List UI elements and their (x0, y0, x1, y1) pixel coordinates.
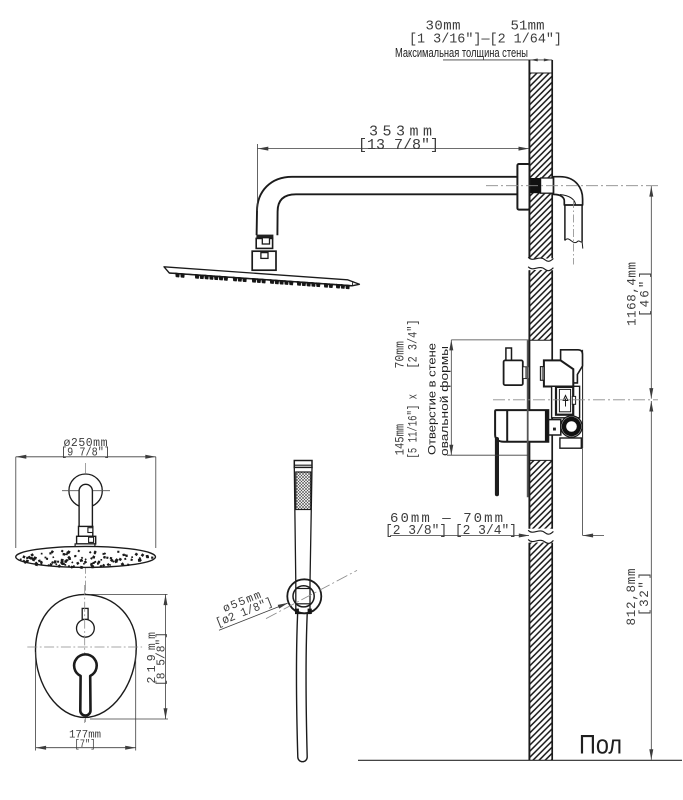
svg-text:овальной формы: овальной формы (439, 346, 451, 456)
svg-text:Максимальная толщина стены: Максимальная толщина стены (395, 45, 528, 60)
svg-text:812,8mm: 812,8mm (625, 569, 639, 626)
svg-text:145mm: 145mm (394, 424, 408, 456)
svg-text:Отверстие в стене: Отверстие в стене (427, 343, 439, 455)
svg-text:[9 7/8"]: [9 7/8"] (61, 447, 110, 460)
svg-text:70mm: 70mm (394, 341, 408, 369)
svg-text:[2 3/4"]: [2 3/4"] (407, 320, 421, 369)
svg-text:[32"]: [32"] (638, 572, 652, 616)
svg-text:[5 11/16"] x: [5 11/16"] x (407, 394, 421, 459)
svg-text:[8 5/8"]: [8 5/8"] (156, 632, 169, 686)
svg-text:[46"]: [46"] (639, 271, 653, 317)
svg-text:[13 7/8"]: [13 7/8"] (358, 137, 439, 154)
svg-text:1168,4mm: 1168,4mm (626, 262, 640, 326)
svg-text:Пол: Пол (579, 730, 622, 760)
svg-text:[7"]: [7"] (75, 739, 96, 751)
svg-text:[2 3/8"] [2 3/4"]: [2 3/8"] [2 3/4"] (385, 523, 517, 539)
